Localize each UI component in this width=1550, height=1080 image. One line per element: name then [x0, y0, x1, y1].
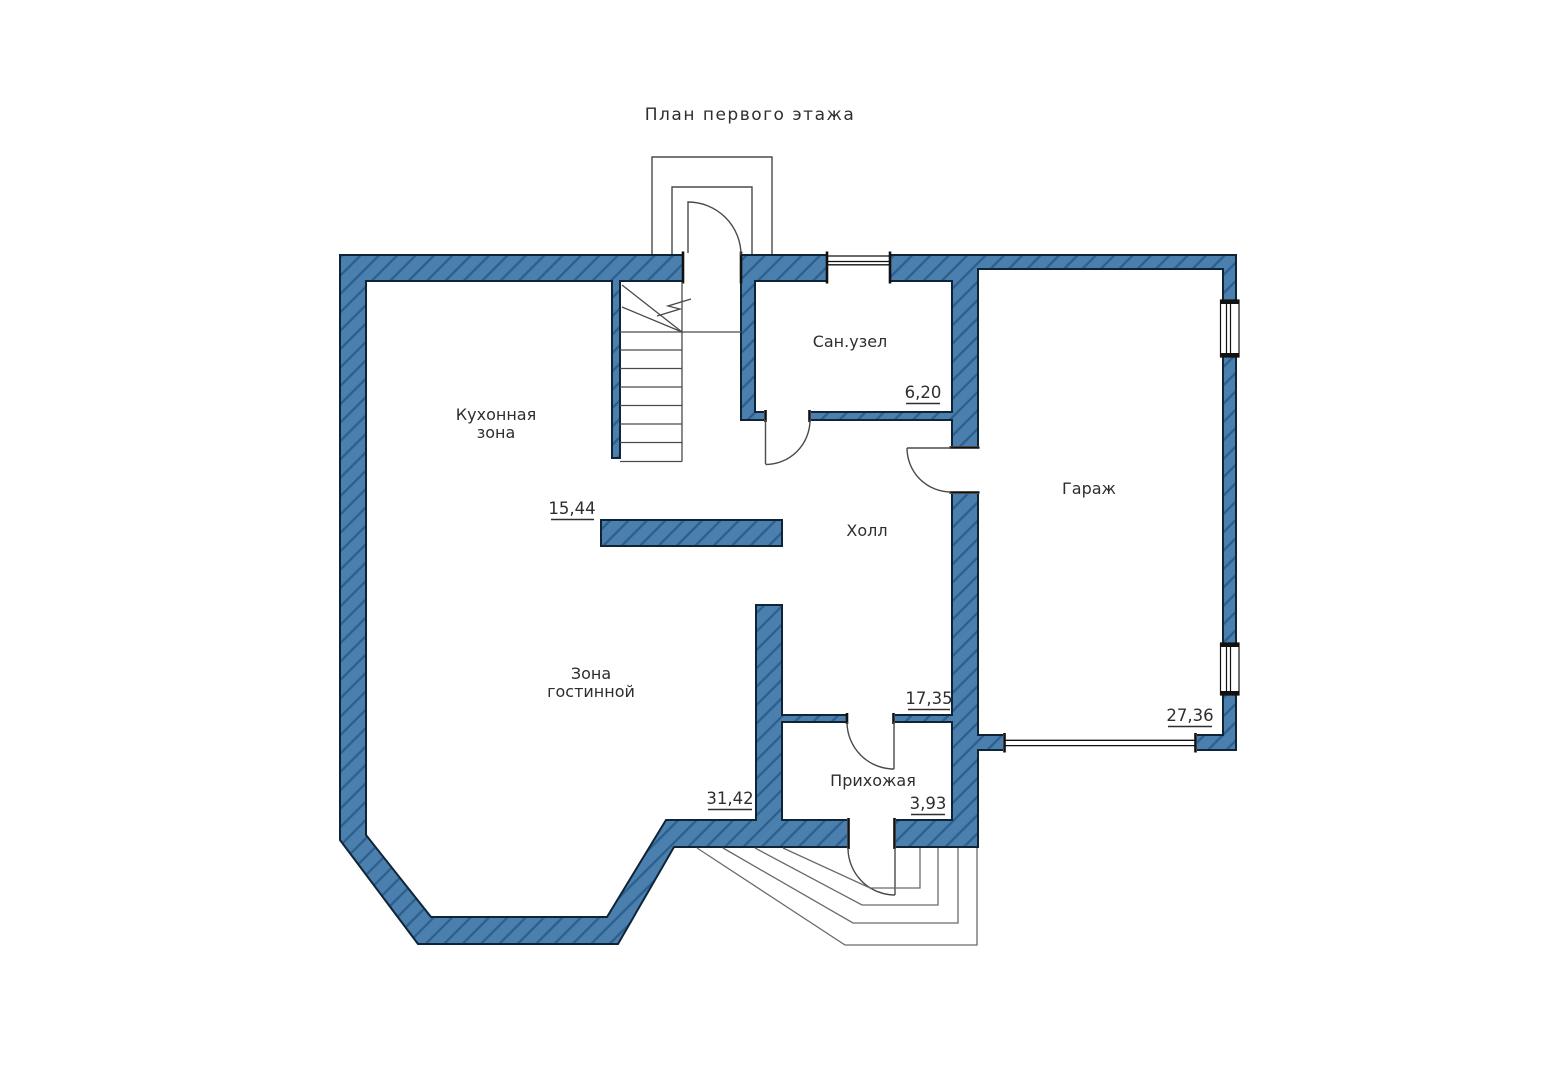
hall-garage-door-opening — [950, 446, 981, 494]
entrance-door-opening — [847, 818, 896, 849]
bathroom-door-opening — [764, 410, 811, 422]
plan-title: План первого этажа — [645, 105, 856, 125]
hall-entry-door-cut — [846, 714, 895, 724]
garage-window-upper-cap-bottom — [1221, 353, 1240, 357]
room-label-garage: Гараж — [1062, 479, 1116, 498]
garage-gate-cut — [1003, 734, 1197, 752]
room-label-living-line1: Зона — [571, 664, 611, 683]
garage-window-upper-frame — [1221, 300, 1240, 357]
area-value-garage: 27,36 — [1166, 706, 1213, 725]
room-label-kitchen-line2: зона — [477, 423, 516, 442]
hall-garage-door-cut — [950, 446, 980, 494]
area-value-living: 31,42 — [706, 789, 753, 808]
garage-window-lower-frame — [1221, 643, 1240, 695]
entrance-door-cut — [847, 819, 896, 849]
area-value-entry: 3,93 — [910, 794, 947, 813]
front-door-opening — [682, 252, 742, 284]
garage-window-lower — [1221, 643, 1240, 695]
room-label-living-line2: гостинной — [547, 682, 635, 701]
garage-window-upper — [1221, 300, 1240, 357]
area-value-kitchen: 15,44 — [548, 499, 595, 518]
floor-plan-page: План первого этажа — [0, 0, 1550, 1080]
garage-window-upper-cap-top — [1221, 300, 1240, 304]
floor-plan-canvas: План первого этажа — [0, 0, 1550, 1080]
bathroom-door-cut — [764, 411, 811, 422]
garage-window-lower-cap-top — [1221, 643, 1240, 647]
room-label-entry: Прихожая — [830, 771, 916, 790]
hall-entry-door-opening — [846, 713, 895, 724]
room-label-hall: Холл — [846, 521, 887, 540]
garage-gate-opening — [1003, 733, 1197, 753]
room-label-bathroom: Сан.узел — [813, 332, 888, 351]
area-value-bathroom: 6,20 — [905, 383, 942, 402]
kitchen-island-wall — [601, 520, 782, 546]
bathroom-window — [826, 252, 891, 284]
garage-window-lower-cap-bottom — [1221, 691, 1240, 695]
area-value-hall: 17,35 — [905, 689, 952, 708]
front-door-cut — [682, 252, 742, 283]
room-label-kitchen-line1: Кухонная — [456, 405, 536, 424]
